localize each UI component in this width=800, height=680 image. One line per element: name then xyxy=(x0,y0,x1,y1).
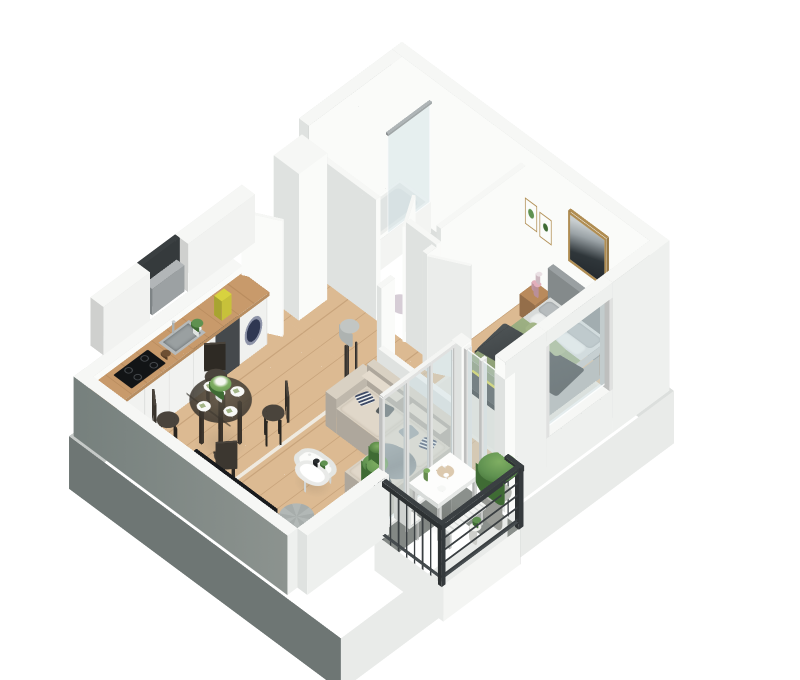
chair-leg-face xyxy=(265,423,267,447)
window-frame-l-face xyxy=(610,297,613,391)
duct-column-face xyxy=(299,153,327,321)
stage xyxy=(0,0,800,680)
wall-sw-facade-face xyxy=(287,528,297,595)
chair-back-face xyxy=(204,344,226,372)
railing-post-face xyxy=(442,523,446,587)
floor-plan-canvas xyxy=(0,0,800,680)
chair-back-face xyxy=(287,396,290,423)
entry-door-leaf-face xyxy=(283,219,284,337)
window-frame-r-face xyxy=(546,345,549,439)
wall-se-living-face xyxy=(297,528,307,595)
railing-post-face xyxy=(519,465,524,530)
chair-leg-face xyxy=(279,422,281,446)
glass-pane-mullion-face xyxy=(407,379,409,513)
